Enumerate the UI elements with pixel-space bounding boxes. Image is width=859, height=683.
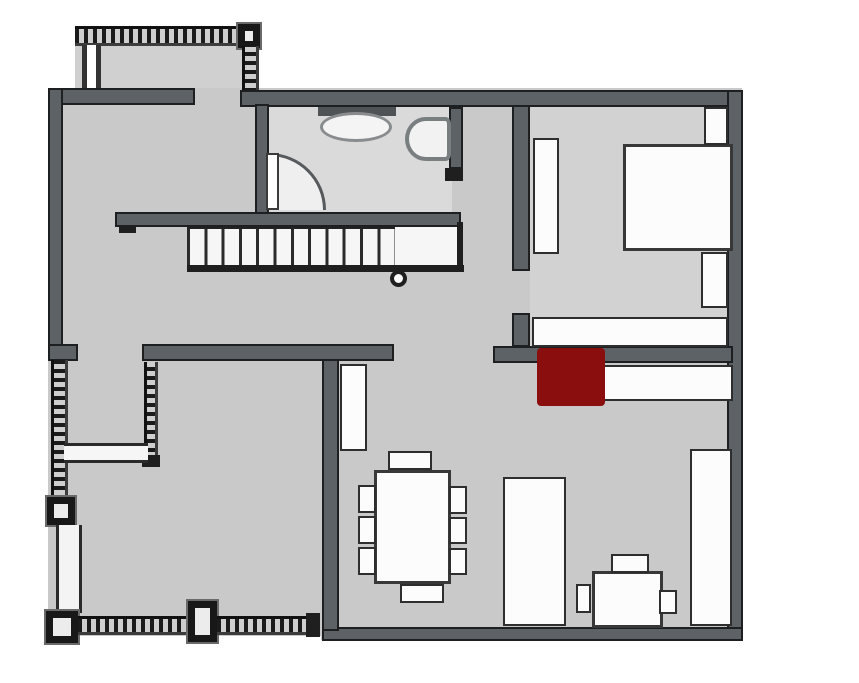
deck-railing-bottom-2 <box>217 616 315 635</box>
nightstand-bottom <box>701 252 728 308</box>
wall-bottom <box>322 627 743 641</box>
wall-bedroom-left-stub <box>512 313 530 347</box>
stairs-treads <box>187 227 395 267</box>
desk-chair-left <box>576 584 591 613</box>
deck-post-top <box>47 497 75 525</box>
wall-bedroom-left <box>512 105 530 271</box>
exterior-mask-bottom-left <box>0 636 321 683</box>
balcony-railing-right <box>242 46 259 92</box>
wall-bathroom-right <box>449 107 463 169</box>
desk-chair-right <box>659 590 677 614</box>
sofa <box>503 477 566 626</box>
wall-top-left <box>48 88 195 105</box>
highlight-square[interactable] <box>537 348 605 406</box>
wall-mid-left-stub <box>48 344 78 361</box>
deck-rail-lower-left <box>56 525 82 613</box>
dining-chair-bottom <box>400 584 444 603</box>
deck-step <box>64 443 148 463</box>
deck-rail-end-nub <box>306 613 320 637</box>
living-shelf <box>340 364 367 451</box>
desk <box>592 571 663 628</box>
dining-chair-right-1 <box>449 486 467 514</box>
bedroom-dresser <box>532 317 728 347</box>
stairs-newel-post <box>390 270 407 287</box>
wall-living-divider <box>322 355 339 631</box>
dining-chair-left-3 <box>358 547 376 575</box>
stairs-left-tick <box>119 227 136 233</box>
dining-chair-right-2 <box>449 517 467 544</box>
deck-railing-bottom-1 <box>78 616 190 635</box>
wall-mid-left <box>142 344 394 361</box>
bedroom-wardrobe <box>533 138 559 254</box>
dining-chair-top <box>388 451 432 470</box>
bathroom-door-leaf <box>266 153 279 210</box>
wall-left <box>48 88 63 360</box>
wall-top-main <box>240 90 742 107</box>
bathroom-door2-stub <box>445 168 463 181</box>
floorplan-stage <box>0 0 859 683</box>
dining-chair-left-2 <box>358 516 376 544</box>
wall-stairs-top <box>115 212 461 227</box>
bathroom-toilet <box>405 117 451 161</box>
nightstand-top <box>704 107 728 145</box>
bed <box>623 144 733 251</box>
balcony-railing-top <box>75 26 258 46</box>
dining-chair-right-3 <box>449 548 467 575</box>
dining-chair-left-1 <box>358 485 376 513</box>
balcony-corner-post <box>238 24 260 48</box>
desk-chair-top <box>611 554 649 573</box>
stairs-landing <box>395 227 457 267</box>
wall-mid-right <box>493 346 733 363</box>
deck-railing-left <box>51 360 68 499</box>
balcony-window-strip <box>82 45 101 90</box>
stairs-landing-right-line <box>457 222 463 272</box>
bathroom-sink <box>320 112 392 142</box>
stairs-bottom-line <box>187 265 464 272</box>
deck-post-bottom-left <box>46 611 78 643</box>
deck-post-bottom-mid <box>188 601 217 642</box>
wall-unit-right <box>690 449 732 626</box>
dining-table <box>374 470 451 584</box>
